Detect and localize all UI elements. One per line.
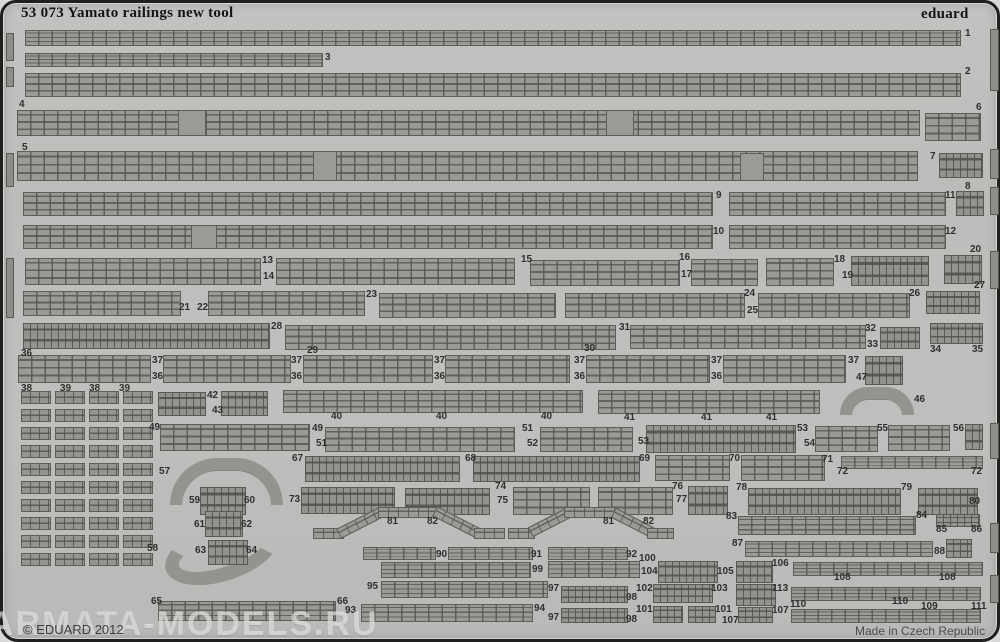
pe-part xyxy=(740,153,764,181)
pe-part xyxy=(561,586,628,603)
pe-part xyxy=(540,427,633,452)
pe-part xyxy=(208,540,248,565)
pe-part xyxy=(123,499,153,512)
pe-part xyxy=(851,256,929,286)
pe-part xyxy=(381,581,548,598)
pe-part xyxy=(158,392,206,416)
part-number: 68 xyxy=(465,454,476,464)
pe-part xyxy=(21,463,51,476)
pe-part xyxy=(89,517,119,530)
part-number: 34 xyxy=(930,345,941,355)
part-number: 82 xyxy=(427,517,438,527)
part-number: 73 xyxy=(289,495,300,505)
pe-part xyxy=(89,499,119,512)
pe-part xyxy=(303,355,433,383)
pe-part xyxy=(21,517,51,530)
part-number: 62 xyxy=(241,520,252,530)
part-number: 36 xyxy=(291,372,302,382)
part-number: 110 xyxy=(790,600,806,610)
part-number: 37 xyxy=(711,356,722,366)
part-number: 30 xyxy=(584,344,595,354)
pe-part xyxy=(23,291,181,316)
part-number: 64 xyxy=(246,546,257,556)
part-number: 39 xyxy=(60,384,71,394)
pe-part xyxy=(473,456,640,482)
pe-part xyxy=(21,553,51,566)
pe-part xyxy=(55,463,85,476)
part-number: 18 xyxy=(834,255,845,265)
part-number: 10 xyxy=(713,227,724,237)
pe-part xyxy=(865,356,903,385)
pe-part xyxy=(313,507,505,539)
pe-part xyxy=(965,424,983,450)
part-number: 47 xyxy=(856,373,867,383)
pe-part xyxy=(926,291,980,314)
pe-part xyxy=(23,323,270,349)
pe-part xyxy=(123,409,153,422)
part-number: 53 xyxy=(797,424,808,434)
pe-part xyxy=(55,553,85,566)
part-number: 37 xyxy=(574,356,585,366)
part-number: 61 xyxy=(194,520,205,530)
part-number: 36 xyxy=(711,372,722,382)
pe-part xyxy=(736,561,773,583)
part-number: 3 xyxy=(325,53,331,63)
pe-part xyxy=(990,29,999,91)
pe-part xyxy=(21,499,51,512)
part-number: 91 xyxy=(531,550,542,560)
pe-part xyxy=(89,463,119,476)
pe-part xyxy=(25,30,961,46)
part-number: 106 xyxy=(772,559,789,569)
pe-part xyxy=(646,425,796,453)
part-number: 13 xyxy=(262,256,273,266)
pe-part xyxy=(956,191,984,216)
pe-part xyxy=(766,258,834,286)
part-number: 100 xyxy=(639,554,656,564)
part-number: 52 xyxy=(527,439,538,449)
pe-part xyxy=(89,481,119,494)
part-number: 103 xyxy=(711,584,728,594)
part-number: 105 xyxy=(717,567,734,577)
pe-part xyxy=(653,606,683,623)
part-number: 38 xyxy=(89,384,100,394)
part-number: 41 xyxy=(624,413,635,423)
part-number: 83 xyxy=(726,512,737,522)
part-number: 110 xyxy=(892,597,908,607)
part-number: 102 xyxy=(636,584,653,594)
pe-part xyxy=(448,547,533,560)
part-number: 6 xyxy=(976,103,982,113)
pe-part xyxy=(55,409,85,422)
part-number: 21 xyxy=(179,303,190,313)
part-number: 111 xyxy=(971,602,987,612)
pe-part xyxy=(653,584,713,603)
pe-part xyxy=(123,553,153,566)
pe-part xyxy=(23,225,713,249)
pe-part-segment xyxy=(647,528,674,539)
part-number: 108 xyxy=(939,573,956,583)
part-number: 104 xyxy=(641,567,658,577)
pe-part xyxy=(548,561,640,578)
part-number: 36 xyxy=(434,372,445,382)
pe-part xyxy=(55,499,85,512)
part-number: 39 xyxy=(119,384,130,394)
pe-part xyxy=(736,584,776,606)
part-number: 41 xyxy=(766,413,777,423)
part-number: 97 xyxy=(548,584,559,594)
pe-part xyxy=(738,516,916,535)
part-number: 12 xyxy=(945,227,956,237)
pe-part xyxy=(25,73,961,97)
pe-part xyxy=(939,153,983,178)
part-number: 37 xyxy=(152,356,163,366)
pe-part xyxy=(89,553,119,566)
part-number: 36 xyxy=(574,372,585,382)
pe-part xyxy=(561,608,628,623)
part-number: 98 xyxy=(626,593,637,603)
part-number: 57 xyxy=(159,467,170,477)
part-number: 78 xyxy=(736,483,747,493)
part-number: 1 xyxy=(965,29,971,39)
part-number: 2 xyxy=(965,67,971,77)
made-in-text: Made in Czech Republic xyxy=(855,624,985,638)
photoetch-scan: 53 073 Yamato railings new tool eduard 1… xyxy=(0,0,1000,642)
pe-part xyxy=(6,33,14,61)
pe-part xyxy=(655,455,730,481)
pe-part xyxy=(21,427,51,440)
part-number: 98 xyxy=(626,615,637,625)
part-number: 4 xyxy=(19,100,25,110)
part-number: 92 xyxy=(626,550,637,560)
copyright-text: © EDUARD 2012 xyxy=(23,622,124,637)
pe-part xyxy=(221,391,268,416)
part-number: 15 xyxy=(521,255,532,265)
part-number: 108 xyxy=(834,573,851,583)
pe-part xyxy=(21,481,51,494)
part-number: 22 xyxy=(197,303,208,313)
pe-part xyxy=(23,192,713,216)
pe-part xyxy=(445,355,570,383)
part-number: 94 xyxy=(534,604,545,614)
pe-part xyxy=(363,547,436,560)
pe-part xyxy=(688,606,716,623)
pe-part xyxy=(21,409,51,422)
part-number: 36 xyxy=(21,349,32,359)
part-number: 46 xyxy=(914,395,925,405)
part-number: 37 xyxy=(848,356,859,366)
pe-part xyxy=(738,607,773,623)
part-number: 25 xyxy=(747,306,758,316)
part-number: 85 xyxy=(936,525,947,535)
part-number: 79 xyxy=(901,483,912,493)
pe-part xyxy=(191,225,217,249)
pe-part xyxy=(18,355,151,383)
pe-part xyxy=(630,325,866,349)
pe-part xyxy=(55,535,85,548)
pe-part xyxy=(178,110,206,136)
part-number: 107 xyxy=(722,616,739,626)
part-number: 37 xyxy=(291,356,302,366)
pe-part xyxy=(606,110,634,136)
pe-part xyxy=(6,258,14,318)
part-number: 26 xyxy=(909,289,920,299)
pe-part-segment xyxy=(474,528,505,539)
part-number: 113 xyxy=(772,584,788,594)
pe-part xyxy=(990,251,999,289)
pe-part xyxy=(123,481,153,494)
pe-part xyxy=(729,225,946,249)
pe-part xyxy=(89,427,119,440)
part-number: 36 xyxy=(152,372,163,382)
pe-part xyxy=(841,456,983,469)
part-number: 29 xyxy=(307,346,318,356)
pe-part xyxy=(946,539,972,558)
pe-part xyxy=(565,293,745,318)
pe-part xyxy=(990,149,999,179)
pe-part xyxy=(791,587,981,601)
pe-part xyxy=(208,291,365,316)
pe-part xyxy=(6,67,14,87)
part-number: 17 xyxy=(681,270,692,280)
pe-part xyxy=(313,151,337,181)
part-number: 40 xyxy=(436,412,447,422)
pe-part xyxy=(379,293,556,318)
pe-part xyxy=(548,547,628,560)
part-number: 49 xyxy=(312,424,323,434)
pe-part xyxy=(381,562,531,578)
part-number: 95 xyxy=(367,582,378,592)
pe-part xyxy=(89,535,119,548)
part-number: 8 xyxy=(965,182,971,192)
part-number: 74 xyxy=(495,482,506,492)
pe-part xyxy=(748,488,901,515)
pe-part xyxy=(160,424,310,451)
pe-part xyxy=(55,427,85,440)
pe-part xyxy=(285,325,616,350)
part-number: 99 xyxy=(532,565,543,575)
pe-part xyxy=(361,604,533,622)
pe-part xyxy=(123,445,153,458)
brand-logo: eduard xyxy=(921,6,969,23)
pe-part xyxy=(89,445,119,458)
part-number: 107 xyxy=(772,606,789,616)
part-number: 40 xyxy=(331,412,342,422)
part-number: 41 xyxy=(701,413,712,423)
part-number: 67 xyxy=(292,454,303,464)
part-number: 81 xyxy=(603,517,614,527)
pe-part xyxy=(729,192,946,216)
part-number: 23 xyxy=(366,290,377,300)
sheet-title: 53 073 Yamato railings new tool xyxy=(21,5,234,22)
pe-part xyxy=(888,425,950,451)
part-number: 97 xyxy=(548,613,559,623)
part-number: 51 xyxy=(522,424,533,434)
pe-part xyxy=(990,423,999,459)
pe-part xyxy=(586,355,710,383)
pe-part xyxy=(163,355,291,383)
pe-part xyxy=(791,609,981,623)
pe-part xyxy=(880,327,920,349)
part-number: 14 xyxy=(263,272,274,282)
pe-part xyxy=(688,486,728,515)
pe-part xyxy=(123,517,153,530)
part-number: 88 xyxy=(934,547,945,557)
part-number: 75 xyxy=(497,496,508,506)
part-number: 42 xyxy=(207,391,218,401)
part-number: 5 xyxy=(22,143,28,153)
part-number: 76 xyxy=(672,482,683,492)
part-number: 20 xyxy=(970,245,981,255)
pe-part xyxy=(990,575,999,603)
part-number: 86 xyxy=(971,525,982,535)
part-number: 49 xyxy=(149,423,160,433)
pe-part xyxy=(723,355,846,383)
part-number: 40 xyxy=(541,412,552,422)
pe-part xyxy=(17,110,920,136)
part-number: 59 xyxy=(189,496,200,506)
pe-part xyxy=(758,293,910,318)
pe-part xyxy=(55,445,85,458)
pe-part xyxy=(305,456,460,482)
part-number: 63 xyxy=(195,546,206,556)
pe-sheet: 53 073 Yamato railings new tool eduard 1… xyxy=(0,0,1000,642)
part-number: 101 xyxy=(715,605,732,615)
part-number: 7 xyxy=(930,152,936,162)
pe-part xyxy=(990,187,999,215)
part-number: 27 xyxy=(974,281,985,291)
part-number: 43 xyxy=(212,406,223,416)
part-number: 77 xyxy=(676,495,687,505)
pe-part xyxy=(6,153,14,187)
pe-part xyxy=(840,387,914,415)
pe-part xyxy=(990,523,999,553)
pe-part xyxy=(276,258,515,285)
pe-part xyxy=(745,541,933,557)
part-number: 33 xyxy=(867,340,878,350)
part-number: 81 xyxy=(387,517,398,527)
part-number: 72 xyxy=(837,467,848,477)
part-number: 9 xyxy=(716,191,722,201)
pe-part xyxy=(55,517,85,530)
pe-part xyxy=(21,535,51,548)
part-number: 35 xyxy=(972,345,983,355)
pe-part xyxy=(741,455,825,481)
part-number: 101 xyxy=(636,605,653,615)
pe-part xyxy=(925,113,981,141)
pe-part xyxy=(25,258,261,285)
part-number: 71 xyxy=(822,455,833,465)
pe-part xyxy=(55,481,85,494)
pe-part xyxy=(21,445,51,458)
part-number: 32 xyxy=(865,324,876,334)
part-number: 53 xyxy=(638,437,649,447)
pe-part xyxy=(325,427,515,452)
pe-part xyxy=(17,151,918,181)
part-number: 37 xyxy=(434,356,445,366)
part-number: 38 xyxy=(21,384,32,394)
pe-part xyxy=(691,259,758,286)
part-number: 56 xyxy=(953,424,964,434)
pe-part xyxy=(658,561,718,583)
pe-part xyxy=(25,53,323,67)
part-number: 69 xyxy=(639,454,650,464)
part-number: 109 xyxy=(921,602,938,612)
part-number: 72 xyxy=(971,467,982,477)
part-number: 19 xyxy=(842,271,853,281)
part-number: 24 xyxy=(744,289,755,299)
part-number: 84 xyxy=(916,511,927,521)
part-number: 55 xyxy=(877,424,888,434)
part-number: 28 xyxy=(271,322,282,332)
part-number: 82 xyxy=(643,517,654,527)
pe-part xyxy=(815,426,878,452)
part-number: 90 xyxy=(436,550,447,560)
part-number: 87 xyxy=(732,539,743,549)
pe-part xyxy=(283,390,583,413)
part-number: 16 xyxy=(679,253,690,263)
part-number: 11 xyxy=(945,191,956,201)
pe-part xyxy=(89,409,119,422)
part-number: 54 xyxy=(804,439,815,449)
part-number: 51 xyxy=(316,439,327,449)
part-number: 58 xyxy=(147,544,158,554)
part-number: 70 xyxy=(729,454,740,464)
part-number: 60 xyxy=(244,496,255,506)
pe-part xyxy=(930,323,983,344)
pe-part xyxy=(123,463,153,476)
pe-part xyxy=(598,390,820,414)
part-number: 31 xyxy=(619,323,630,333)
part-number: 80 xyxy=(969,497,980,507)
pe-part xyxy=(530,260,680,286)
